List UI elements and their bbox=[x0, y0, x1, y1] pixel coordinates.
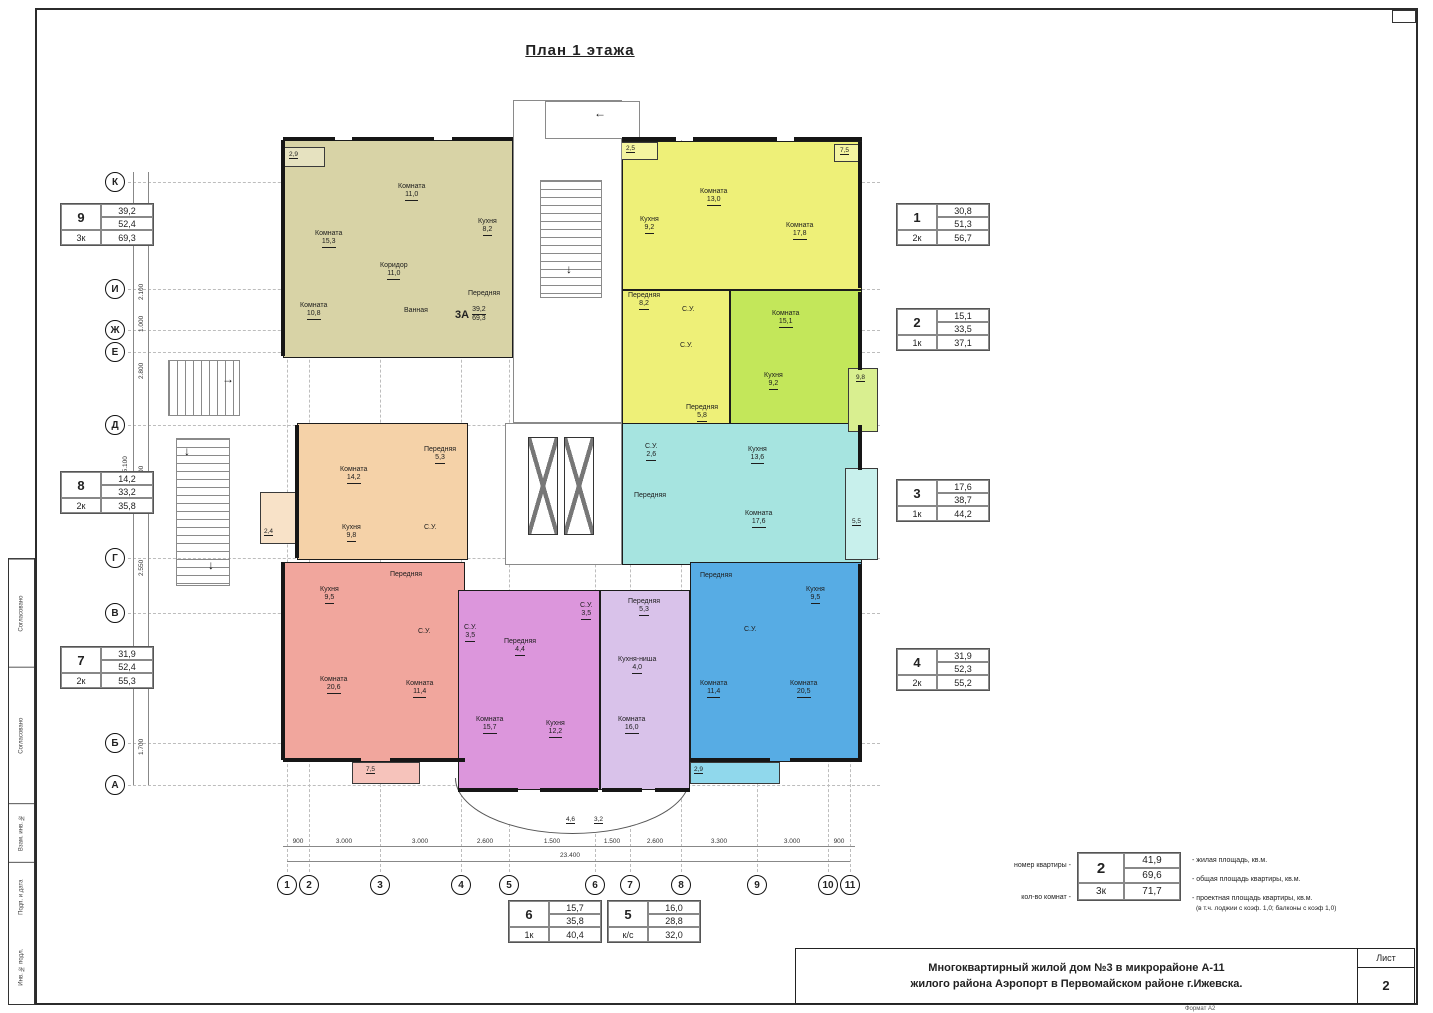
room-label: Комната17,8 bbox=[786, 222, 813, 240]
wall-segment bbox=[794, 137, 862, 141]
room-area: 15,1 bbox=[779, 318, 793, 327]
legend-rooms-label: кол-во комнат - bbox=[983, 894, 1071, 901]
apartment-info-box-4: 4 31,9 52,3 2к 55,2 bbox=[896, 648, 990, 691]
room-area: 11,0 bbox=[387, 270, 400, 279]
room-label: Передняя bbox=[634, 492, 666, 500]
room-label: Передняя bbox=[700, 572, 732, 580]
living-area: 15,7 bbox=[549, 901, 601, 914]
room-area: 12,2 bbox=[549, 728, 563, 737]
unit-area-label: 3А 39,269,3 bbox=[455, 306, 486, 323]
sheet-column: Лист 2 bbox=[1357, 949, 1414, 1003]
wall-segment bbox=[790, 758, 862, 762]
room-area: 5,3 bbox=[435, 454, 445, 463]
balcony-area: 7,5 bbox=[366, 766, 375, 774]
apartment-5-area bbox=[600, 590, 690, 790]
project-area: 40,4 bbox=[549, 927, 601, 942]
sheet-number: 2 bbox=[1358, 968, 1414, 1003]
room-area: 9,8 bbox=[347, 532, 357, 541]
living-area: 30,8 bbox=[937, 204, 989, 217]
dimension: 2.800 bbox=[138, 354, 145, 388]
project-area: 55,2 bbox=[937, 675, 989, 690]
room-name: Кухня bbox=[342, 524, 361, 532]
wall-segment bbox=[283, 137, 335, 141]
balcony-area: 2,5 bbox=[626, 145, 635, 153]
wall-segment bbox=[690, 758, 770, 762]
room-area: 13,6 bbox=[751, 454, 765, 463]
room-name: Комната bbox=[745, 510, 772, 518]
axis-bubble-bottom: 5 bbox=[499, 875, 519, 895]
room-area: 11,4 bbox=[413, 688, 426, 697]
room-label: Комната10,8 bbox=[300, 302, 327, 320]
room-area: 5,8 bbox=[697, 412, 707, 421]
legend-desc-total: - общая площадь квартиры, кв.м. bbox=[1192, 876, 1301, 883]
axis-bubble-bottom: 3 bbox=[370, 875, 390, 895]
room-name: Комната bbox=[340, 466, 367, 474]
elevator-shaft bbox=[528, 437, 558, 535]
living-area: 31,9 bbox=[101, 647, 153, 660]
rooms-count: 3к bbox=[61, 230, 101, 245]
stair-arrow-icon: ↓ bbox=[208, 558, 214, 572]
room-area: 17,8 bbox=[793, 230, 807, 239]
axis-bubble-left: И bbox=[105, 279, 125, 299]
wall-segment bbox=[540, 788, 598, 792]
page-title: План 1 этажа bbox=[495, 42, 665, 59]
room-name: Комната bbox=[398, 183, 425, 191]
room-area: 15,7 bbox=[483, 724, 497, 733]
balcony-area: 9,8 bbox=[856, 374, 865, 382]
project-area: 44,2 bbox=[937, 506, 989, 521]
axis-bubble-bottom: 2 bbox=[299, 875, 319, 895]
dimension-line bbox=[287, 861, 850, 862]
room-area: 11,4 bbox=[707, 688, 720, 697]
room-name: Кухня bbox=[546, 720, 565, 728]
total-area: 35,8 bbox=[549, 914, 601, 927]
room-label: Комната20,6 bbox=[320, 676, 347, 694]
wall-segment bbox=[858, 292, 862, 370]
balcony bbox=[690, 762, 780, 784]
total-area: 52,3 bbox=[937, 662, 989, 675]
rooms-count: 1к bbox=[897, 335, 937, 350]
axis-bubble-bottom: 8 bbox=[671, 875, 691, 895]
room-label: Комната11,4 bbox=[406, 680, 433, 698]
entry-arrow-icon: ← bbox=[594, 106, 606, 120]
wall-segment bbox=[622, 137, 676, 141]
axis-bubble-bottom: 7 bbox=[620, 875, 640, 895]
room-name: Передняя bbox=[628, 598, 660, 606]
rooms-count: 1к bbox=[897, 506, 937, 521]
total-area: 52,4 bbox=[101, 660, 153, 673]
dimension: 1.500 bbox=[535, 838, 569, 845]
axis-bubble-bottom: 11 bbox=[840, 875, 860, 895]
frame-corner-box bbox=[1392, 10, 1416, 23]
room-name: Передняя bbox=[424, 446, 456, 454]
room-name: Кухня bbox=[806, 586, 825, 594]
unit-id: 3А bbox=[455, 309, 469, 321]
room-area: 8,2 bbox=[483, 226, 493, 235]
room-label: Кухня9,2 bbox=[764, 372, 783, 390]
stamp-cell: Подп. и дата bbox=[9, 862, 34, 931]
dimension: 2.550 bbox=[138, 551, 145, 585]
axis-bubble-left: Б bbox=[105, 733, 125, 753]
dimension: 3.300 bbox=[702, 838, 736, 845]
room-label: Комната11,0 bbox=[398, 183, 425, 201]
project-title-line1: Многоквартирный жилой дом №3 в микрорайо… bbox=[928, 960, 1224, 977]
dimension: 900 bbox=[281, 838, 315, 845]
stair-arrow-icon: ↓ bbox=[566, 262, 572, 276]
room-name: Передняя bbox=[634, 492, 666, 500]
balcony-area: 2,4 bbox=[264, 528, 273, 536]
room-label: Передняя5,8 bbox=[686, 404, 718, 422]
balcony-area: 5,5 bbox=[852, 518, 861, 526]
staircase bbox=[540, 180, 602, 298]
axis-bubble-left: А bbox=[105, 775, 125, 795]
stamp-column: Согласовано Согласовано Взам. инв. № Под… bbox=[8, 558, 35, 1005]
room-name: Кухня bbox=[748, 446, 767, 454]
dimension: 1.500 bbox=[595, 838, 629, 845]
total-area: 28,8 bbox=[648, 914, 700, 927]
room-name: Комната bbox=[476, 716, 503, 724]
dimension: 900 bbox=[822, 838, 856, 845]
room-name: Комната bbox=[618, 716, 645, 724]
wall-segment bbox=[352, 137, 434, 141]
apartment-9-area bbox=[283, 140, 513, 358]
apartment-number: 4 bbox=[897, 649, 937, 675]
stamp-cell: Согласовано bbox=[9, 667, 34, 804]
apartment-number: 5 bbox=[608, 901, 648, 927]
stamp-cell: Инв. № подл. bbox=[9, 931, 34, 1004]
balcony-area: 2,9 bbox=[289, 151, 298, 159]
room-name: Комната bbox=[772, 310, 799, 318]
apartment-info-box-7: 7 31,9 52,4 2к 55,3 bbox=[60, 646, 154, 689]
dimension: 3.000 bbox=[403, 838, 437, 845]
dimension-total: 23.400 bbox=[548, 852, 592, 859]
room-label: Комната11,4 bbox=[700, 680, 727, 698]
room-name: Кухня-ниша bbox=[618, 656, 656, 664]
apartment-number: 6 bbox=[509, 901, 549, 927]
dimension: 3.000 bbox=[775, 838, 809, 845]
title-block: Многоквартирный жилой дом №3 в микрорайо… bbox=[795, 948, 1415, 1004]
room-name: Комната bbox=[700, 680, 727, 688]
room-label: С.У.2,6 bbox=[645, 443, 657, 461]
room-label: Комната15,7 bbox=[476, 716, 503, 734]
apartment-info-box-9: 9 39,2 52,4 3к 69,3 bbox=[60, 203, 154, 246]
room-name: Комната bbox=[300, 302, 327, 310]
apartment-info-box-8: 8 14,2 33,2 2к 35,8 bbox=[60, 471, 154, 514]
room-name: Кухня bbox=[640, 216, 659, 224]
wall-segment bbox=[602, 788, 642, 792]
apartment-info-box-3: 3 17,6 38,7 1к 44,2 bbox=[896, 479, 990, 522]
room-label: С.У.3,5 bbox=[580, 602, 592, 620]
room-area: 20,6 bbox=[327, 684, 341, 693]
room-name: Передняя bbox=[700, 572, 732, 580]
living-area: 39,2 bbox=[101, 204, 153, 217]
axis-bubble-bottom: 1 bbox=[277, 875, 297, 895]
balcony bbox=[845, 468, 878, 560]
outdoor-stair bbox=[168, 360, 240, 416]
room-name: С.У. bbox=[680, 342, 692, 350]
legend-sample-box: 2 41,9 69,6 3к 71,7 bbox=[1077, 852, 1181, 901]
room-name: С.У. bbox=[464, 624, 476, 632]
apartment-info-box-5: 5 16,0 28,8 к/с 32,0 bbox=[607, 900, 701, 943]
room-label: Передняя4,4 bbox=[504, 638, 536, 656]
rooms-count: 2к bbox=[61, 498, 101, 513]
total-area: 38,7 bbox=[937, 493, 989, 506]
wall-segment bbox=[858, 142, 862, 288]
room-name: Кухня bbox=[764, 372, 783, 380]
room-label: Кухня8,2 bbox=[478, 218, 497, 236]
unit-total-area: 69,3 bbox=[472, 315, 486, 323]
room-name: Передняя bbox=[468, 290, 500, 298]
room-label: Ванная bbox=[404, 307, 428, 315]
room-name: Кухня bbox=[320, 586, 339, 594]
dimension: 1.700 bbox=[138, 730, 145, 764]
axis-bubble-bottom: 10 bbox=[818, 875, 838, 895]
axis-bubble-left: Г bbox=[105, 548, 125, 568]
axis-bubble-left: В bbox=[105, 603, 125, 623]
dimension: 2.100 bbox=[138, 275, 145, 309]
legend-living-area: 41,9 bbox=[1124, 853, 1180, 868]
legend-desc-living: - жилая площадь, кв.м. bbox=[1192, 857, 1267, 864]
wall-segment bbox=[458, 788, 518, 792]
room-label: Кухня9,2 bbox=[640, 216, 659, 234]
rooms-count: 1к bbox=[509, 927, 549, 942]
room-name: С.У. bbox=[682, 306, 694, 314]
room-label: С.У. bbox=[680, 342, 692, 350]
wall-segment bbox=[281, 140, 285, 356]
room-label: Кухня9,8 bbox=[342, 524, 361, 542]
room-name: Комната bbox=[700, 188, 727, 196]
legend-desc-project-note: (в т.ч. лоджии с коэф. 1,0; балконы с ко… bbox=[1196, 905, 1336, 912]
project-area: 35,8 bbox=[101, 498, 153, 513]
wall-segment bbox=[858, 564, 862, 760]
project-area: 55,3 bbox=[101, 673, 153, 688]
balcony bbox=[260, 492, 297, 544]
total-area: 33,5 bbox=[937, 322, 989, 335]
room-label: Кухня9,5 bbox=[806, 586, 825, 604]
room-label: Комната15,3 bbox=[315, 230, 342, 248]
project-area: 32,0 bbox=[648, 927, 700, 942]
apartment-info-box-1: 1 30,8 51,3 2к 56,7 bbox=[896, 203, 990, 246]
wall-segment bbox=[281, 562, 285, 760]
sheet-label: Лист bbox=[1358, 949, 1414, 968]
apartment-number: 2 bbox=[897, 309, 937, 335]
apartment-6-area bbox=[458, 590, 600, 790]
room-area: 20,5 bbox=[797, 688, 811, 697]
wall-segment bbox=[295, 425, 299, 558]
room-area: 5,3 bbox=[639, 606, 649, 615]
apartment-4-area bbox=[690, 562, 862, 762]
room-area: 2,6 bbox=[646, 451, 656, 460]
apartment-8-area bbox=[297, 423, 468, 560]
room-area: 11,0 bbox=[405, 191, 418, 200]
balcony-area: 7,5 bbox=[840, 147, 849, 155]
room-area: 3,5 bbox=[581, 610, 591, 619]
living-area: 31,9 bbox=[937, 649, 989, 662]
axis-bubble-bottom: 9 bbox=[747, 875, 767, 895]
room-area: 14,2 bbox=[347, 474, 361, 483]
room-area: 10,8 bbox=[307, 310, 321, 319]
rooms-count: 2к bbox=[897, 675, 937, 690]
dimension: 3.000 bbox=[327, 838, 361, 845]
elevator-shaft bbox=[564, 437, 594, 535]
total-area: 51,3 bbox=[937, 217, 989, 230]
project-title: Многоквартирный жилой дом №3 в микрорайо… bbox=[796, 949, 1357, 1003]
axis-bubble-bottom: 6 bbox=[585, 875, 605, 895]
room-name: Комната bbox=[790, 680, 817, 688]
living-area: 16,0 bbox=[648, 901, 700, 914]
wall-segment bbox=[283, 758, 361, 762]
living-area: 17,6 bbox=[937, 480, 989, 493]
total-area: 52,4 bbox=[101, 217, 153, 230]
room-label: Передняя8,2 bbox=[628, 292, 660, 310]
room-area: 4,0 bbox=[632, 664, 642, 673]
rooms-count: к/с bbox=[608, 927, 648, 942]
room-area: 9,2 bbox=[645, 224, 655, 233]
room-label: Комната20,5 bbox=[790, 680, 817, 698]
project-area: 37,1 bbox=[937, 335, 989, 350]
room-label: Комната14,2 bbox=[340, 466, 367, 484]
room-label: Передняя bbox=[468, 290, 500, 298]
axis-bubble-left: Е bbox=[105, 342, 125, 362]
room-label: С.У. bbox=[682, 306, 694, 314]
rooms-count: 2к bbox=[61, 673, 101, 688]
unit-living-area: 39,2 bbox=[472, 306, 486, 315]
axis-bubble-left: Д bbox=[105, 415, 125, 435]
room-area: 4,4 bbox=[515, 646, 525, 655]
axis-bubble-left: К bbox=[105, 172, 125, 192]
legend-rooms-count: 3к bbox=[1078, 883, 1124, 900]
axis-bubble-bottom: 4 bbox=[451, 875, 471, 895]
wall-segment bbox=[858, 425, 862, 470]
room-name: Ванная bbox=[404, 307, 428, 315]
room-name: Передняя bbox=[390, 571, 422, 579]
room-label: Коридор11,0 bbox=[380, 262, 408, 280]
apartment-number: 8 bbox=[61, 472, 101, 498]
room-area: 3,5 bbox=[465, 632, 475, 641]
total-area: 33,2 bbox=[101, 485, 153, 498]
room-name: Передняя bbox=[628, 292, 660, 300]
room-name: Коридор bbox=[380, 262, 408, 270]
project-area: 69,3 bbox=[101, 230, 153, 245]
room-area: 15,3 bbox=[322, 238, 336, 247]
wall-segment bbox=[390, 758, 465, 762]
room-area: 9,5 bbox=[325, 594, 335, 603]
dimension: 1.000 bbox=[138, 307, 145, 341]
entrance-vestibule bbox=[545, 101, 640, 139]
dimension: 2.600 bbox=[468, 838, 502, 845]
room-label: Кухня13,6 bbox=[748, 446, 767, 464]
apartment-7-area bbox=[283, 562, 465, 762]
room-name: С.У. bbox=[744, 626, 756, 634]
room-label: Кухня-ниша4,0 bbox=[618, 656, 656, 674]
room-label: Комната17,6 bbox=[745, 510, 772, 528]
room-label: Передняя bbox=[390, 571, 422, 579]
apartment-info-box-6: 6 15,7 35,8 1к 40,4 bbox=[508, 900, 602, 943]
room-name: С.У. bbox=[418, 628, 430, 636]
apartment-number: 7 bbox=[61, 647, 101, 673]
stamp-cell: Взам. инв. № bbox=[9, 803, 34, 862]
stair-arrow-icon: ↓ bbox=[184, 444, 190, 458]
balcony-area: 4,6 bbox=[566, 816, 575, 824]
project-title-line2: жилого района Аэропорт в Первомайском ра… bbox=[911, 976, 1243, 993]
apartment-number: 3 bbox=[897, 480, 937, 506]
balcony-area: 3,2 bbox=[594, 816, 603, 824]
room-label: С.У.3,5 bbox=[464, 624, 476, 642]
dimension: 2.600 bbox=[638, 838, 672, 845]
room-name: Комната bbox=[315, 230, 342, 238]
room-area: 17,6 bbox=[752, 518, 766, 527]
outdoor-stair bbox=[176, 438, 230, 586]
axis-bubble-left: Ж bbox=[105, 320, 125, 340]
room-area: 8,2 bbox=[639, 300, 649, 309]
room-name: С.У. bbox=[580, 602, 592, 610]
room-label: Комната13,0 bbox=[700, 188, 727, 206]
wall-segment bbox=[693, 137, 777, 141]
room-name: Кухня bbox=[478, 218, 497, 226]
room-label: Кухня9,5 bbox=[320, 586, 339, 604]
stamp-cell: Согласовано bbox=[9, 559, 34, 667]
room-label: Комната15,1 bbox=[772, 310, 799, 328]
legend-number-label: номер квартиры - bbox=[983, 862, 1071, 869]
legend-apartment-number: 2 bbox=[1078, 853, 1124, 883]
apartment-number: 9 bbox=[61, 204, 101, 230]
apartment-info-box-2: 2 15,1 33,5 1к 37,1 bbox=[896, 308, 990, 351]
room-label: Передняя5,3 bbox=[628, 598, 660, 616]
room-name: Комната bbox=[786, 222, 813, 230]
room-area: 16,0 bbox=[625, 724, 639, 733]
legend-total-area: 69,6 bbox=[1124, 868, 1180, 883]
project-area: 56,7 bbox=[937, 230, 989, 245]
room-area: 13,0 bbox=[707, 196, 721, 205]
rooms-count: 2к bbox=[897, 230, 937, 245]
room-name: Комната bbox=[406, 680, 433, 688]
apartment-number: 1 bbox=[897, 204, 937, 230]
room-label: С.У. bbox=[424, 524, 436, 532]
format-note: Формат А2 bbox=[1185, 1006, 1215, 1012]
balcony-area: 2,9 bbox=[694, 766, 703, 774]
wall-segment bbox=[452, 137, 513, 141]
room-area: 9,2 bbox=[769, 380, 779, 389]
room-label: С.У. bbox=[418, 628, 430, 636]
room-name: С.У. bbox=[645, 443, 657, 451]
room-label: Передняя5,3 bbox=[424, 446, 456, 464]
room-area: 9,5 bbox=[811, 594, 821, 603]
balcony bbox=[352, 762, 420, 784]
legend-project-area: 71,7 bbox=[1124, 883, 1180, 900]
stair-arrow-icon: → bbox=[222, 372, 234, 386]
room-label: С.У. bbox=[744, 626, 756, 634]
room-name: Комната bbox=[320, 676, 347, 684]
room-name: С.У. bbox=[424, 524, 436, 532]
wall-segment bbox=[655, 788, 690, 792]
room-label: Кухня12,2 bbox=[546, 720, 565, 738]
living-area: 15,1 bbox=[937, 309, 989, 322]
room-name: Передняя bbox=[686, 404, 718, 412]
living-area: 14,2 bbox=[101, 472, 153, 485]
dimension-line bbox=[283, 846, 855, 847]
room-name: Передняя bbox=[504, 638, 536, 646]
room-label: Комната16,0 bbox=[618, 716, 645, 734]
legend-desc-project: - проектная площадь квартиры, кв.м. bbox=[1192, 895, 1313, 902]
